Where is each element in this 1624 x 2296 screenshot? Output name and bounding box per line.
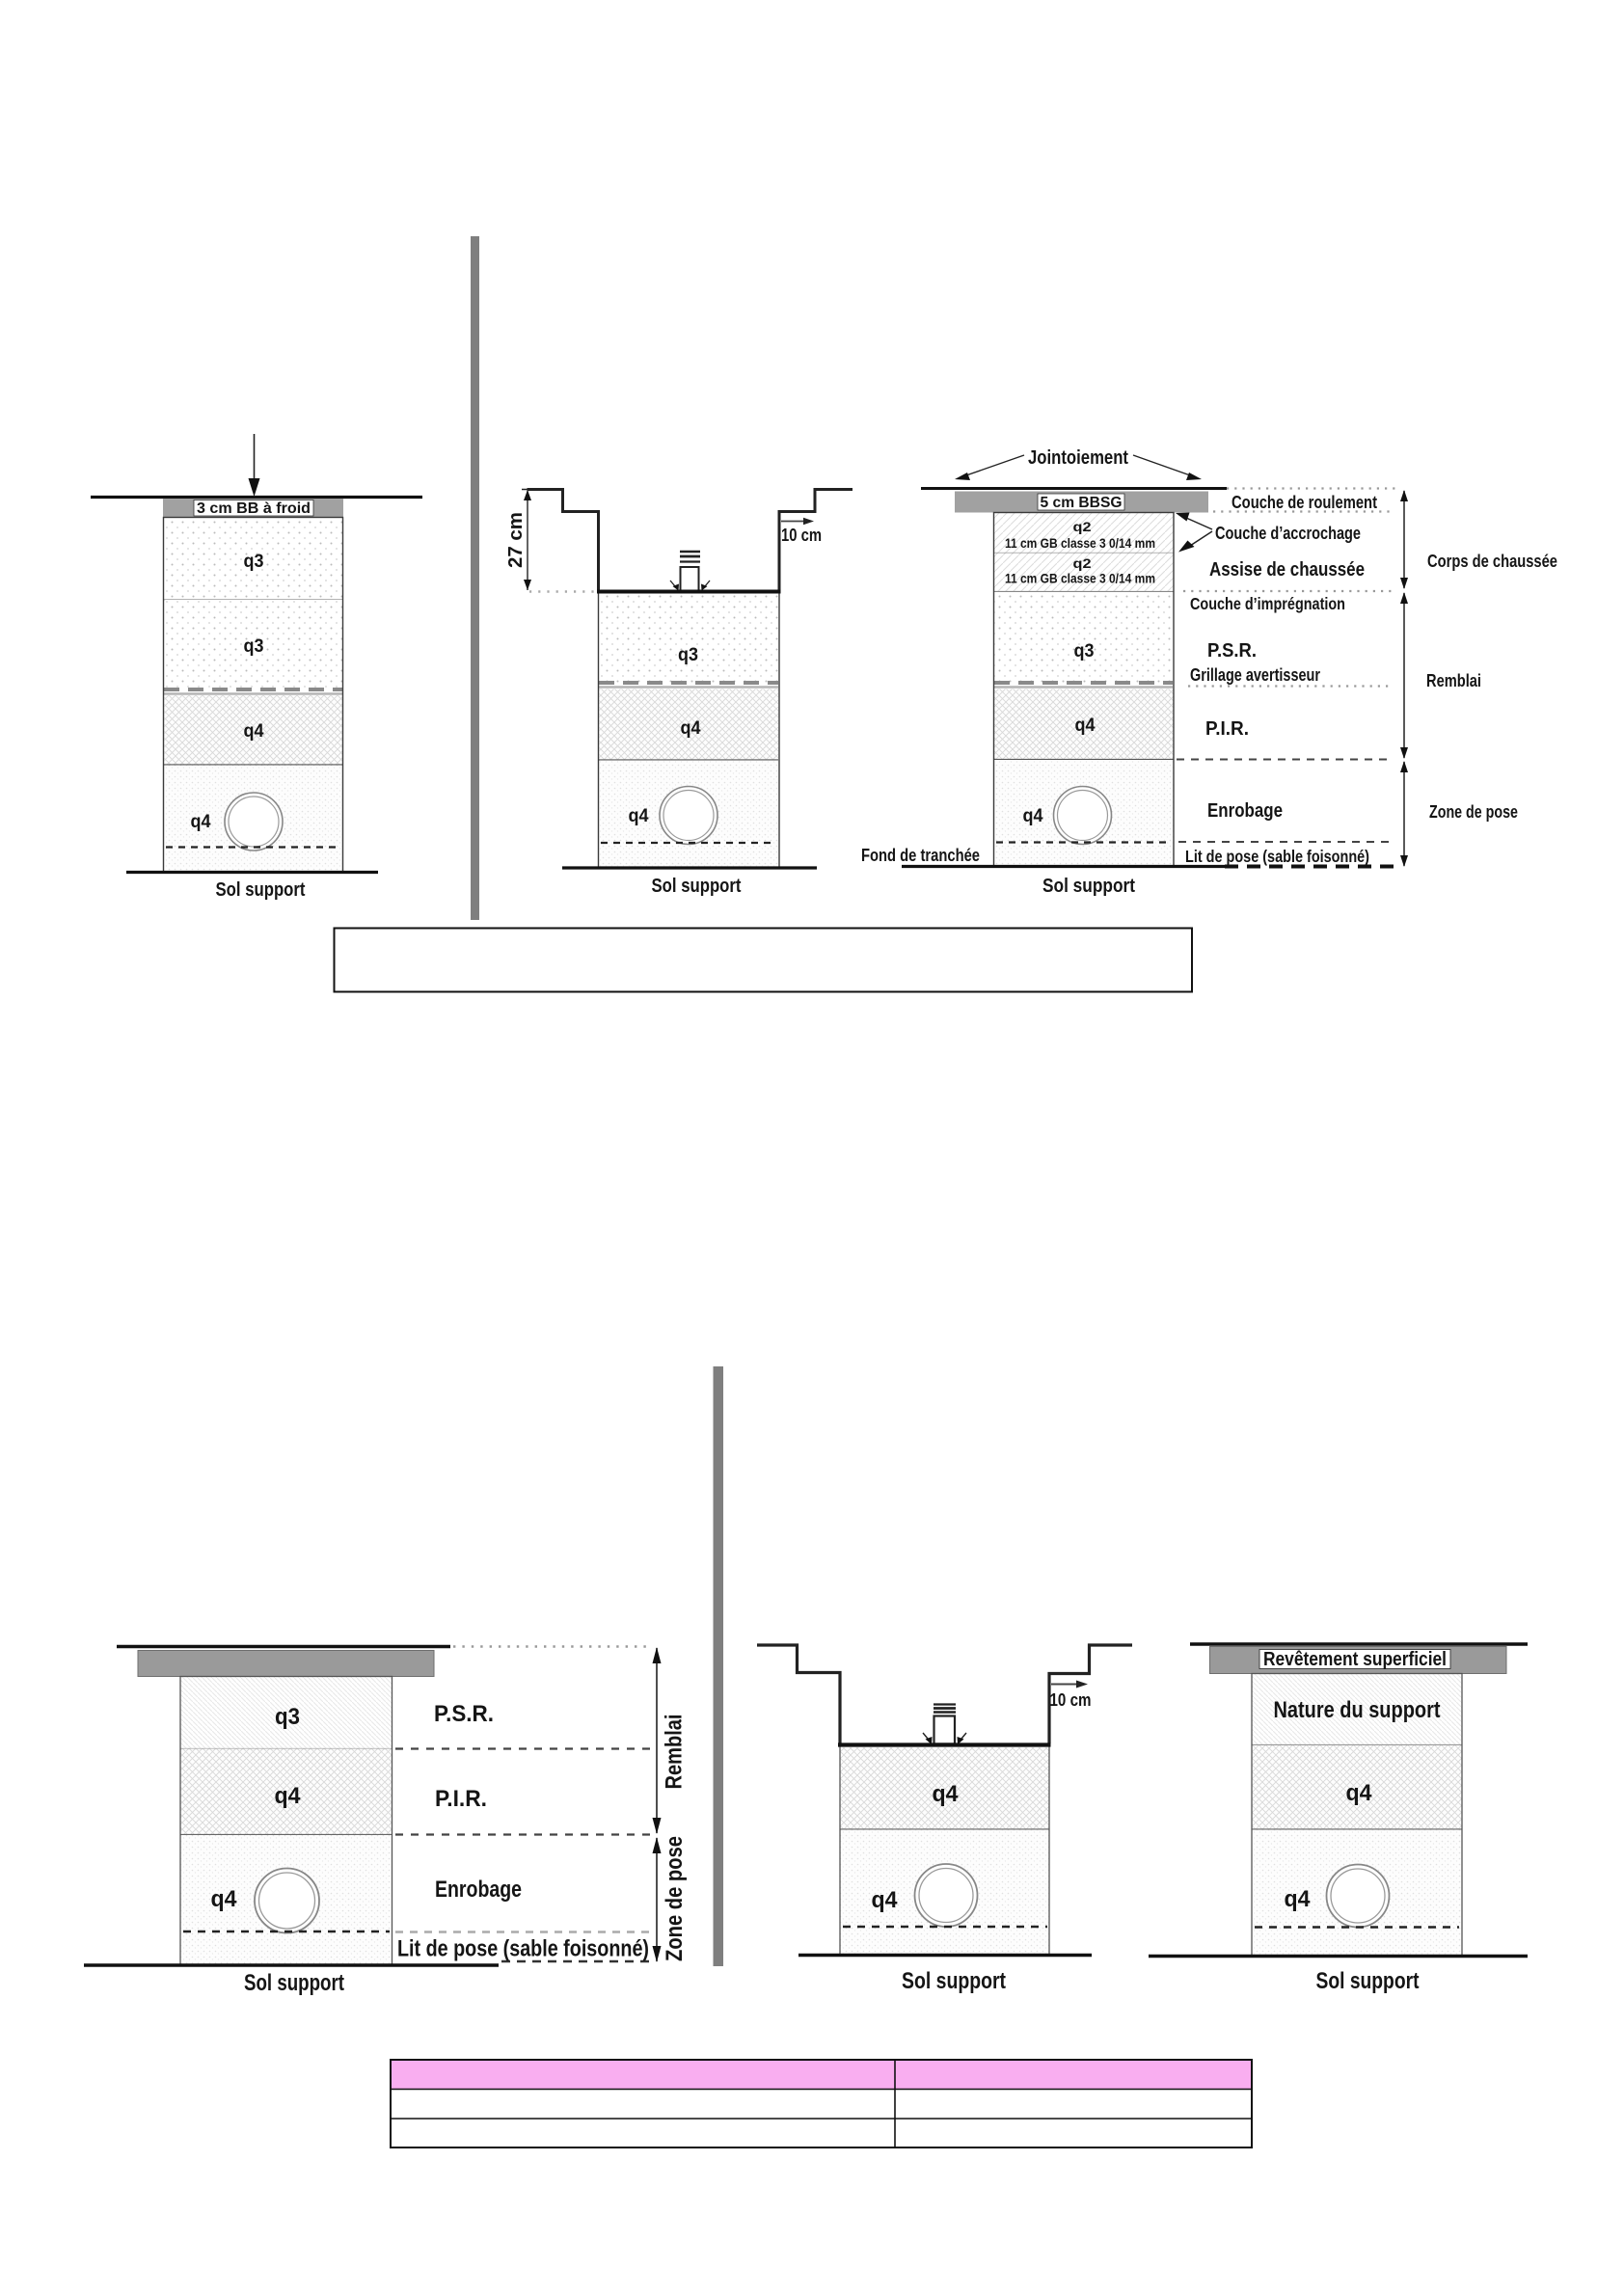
- svg-text:Revêtement superficiel: Revêtement superficiel: [1263, 1648, 1447, 1670]
- svg-text:P.S.R.: P.S.R.: [434, 1701, 494, 1727]
- svg-text:27 cm: 27 cm: [505, 512, 527, 568]
- svg-text:q4: q4: [1023, 806, 1043, 826]
- svg-text:Lit de pose (sable foisonné): Lit de pose (sable foisonné): [1185, 847, 1369, 866]
- svg-text:Enrobage: Enrobage: [435, 1877, 522, 1903]
- svg-text:Couche d’accrochage: Couche d’accrochage: [1215, 524, 1361, 543]
- svg-text:Assise de chaussée: Assise de chaussée: [1209, 559, 1365, 581]
- svg-text:q3: q3: [1074, 641, 1095, 662]
- svg-text:q4: q4: [681, 718, 701, 739]
- svg-text:q2: q2: [1073, 519, 1092, 534]
- svg-text:Sol support: Sol support: [216, 879, 306, 901]
- svg-text:10 cm: 10 cm: [1050, 1690, 1092, 1710]
- svg-text:q4: q4: [275, 1783, 302, 1809]
- svg-text:3 cm BB à froid: 3 cm BB à froid: [197, 500, 311, 517]
- svg-text:Sol support: Sol support: [244, 1970, 344, 1996]
- svg-text:q3: q3: [275, 1704, 300, 1730]
- svg-text:Sol support: Sol support: [902, 1968, 1006, 1994]
- svg-text:q4: q4: [244, 721, 264, 742]
- svg-text:11 cm GB classe 3 0/14 mm: 11 cm GB classe 3 0/14 mm: [1005, 571, 1155, 586]
- svg-text:Couche d’imprégnation: Couche d’imprégnation: [1190, 594, 1345, 613]
- svg-text:Nature du support: Nature du support: [1274, 1697, 1441, 1723]
- svg-text:q4: q4: [872, 1887, 899, 1913]
- svg-text:q4: q4: [933, 1781, 960, 1807]
- svg-text:Couche de roulement: Couche de roulement: [1232, 493, 1377, 512]
- svg-text:Enrobage: Enrobage: [1207, 800, 1283, 822]
- svg-text:Remblai: Remblai: [1426, 671, 1481, 690]
- svg-text:10 cm: 10 cm: [781, 526, 822, 545]
- svg-text:P.S.R.: P.S.R.: [1207, 640, 1257, 662]
- svg-text:Jointoiement: Jointoiement: [1028, 447, 1128, 469]
- svg-text:q4: q4: [629, 806, 649, 826]
- svg-text:11 cm GB classe 3 0/14 mm: 11 cm GB classe 3 0/14 mm: [1005, 535, 1155, 551]
- svg-text:Zone de pose: Zone de pose: [662, 1836, 688, 1961]
- svg-text:q4: q4: [1346, 1780, 1373, 1806]
- svg-text:P.I.R.: P.I.R.: [435, 1786, 487, 1812]
- svg-text:5 cm BBSG: 5 cm BBSG: [1041, 495, 1123, 511]
- svg-text:Sol support: Sol support: [1042, 876, 1135, 897]
- svg-text:q3: q3: [678, 645, 698, 665]
- svg-text:Zone de pose: Zone de pose: [1429, 802, 1518, 822]
- svg-text:Sol support: Sol support: [652, 876, 742, 897]
- svg-text:Corps de chaussée: Corps de chaussée: [1427, 552, 1557, 571]
- svg-text:q4: q4: [191, 812, 211, 832]
- svg-text:Remblai: Remblai: [662, 1715, 688, 1790]
- svg-text:q2: q2: [1073, 555, 1092, 571]
- svg-text:q3: q3: [244, 636, 264, 657]
- svg-text:Grillage avertisseur: Grillage avertisseur: [1190, 665, 1320, 685]
- svg-text:q4: q4: [211, 1886, 238, 1912]
- svg-text:Lit de pose (sable foisonné): Lit de pose (sable foisonné): [397, 1936, 649, 1962]
- svg-text:q4: q4: [1285, 1886, 1312, 1912]
- svg-text:P.I.R.: P.I.R.: [1205, 718, 1249, 740]
- svg-text:q3: q3: [244, 552, 264, 572]
- svg-text:Sol support: Sol support: [1316, 1968, 1420, 1994]
- svg-text:Fond de tranchée: Fond de tranchée: [861, 846, 980, 865]
- svg-text:q4: q4: [1075, 716, 1096, 736]
